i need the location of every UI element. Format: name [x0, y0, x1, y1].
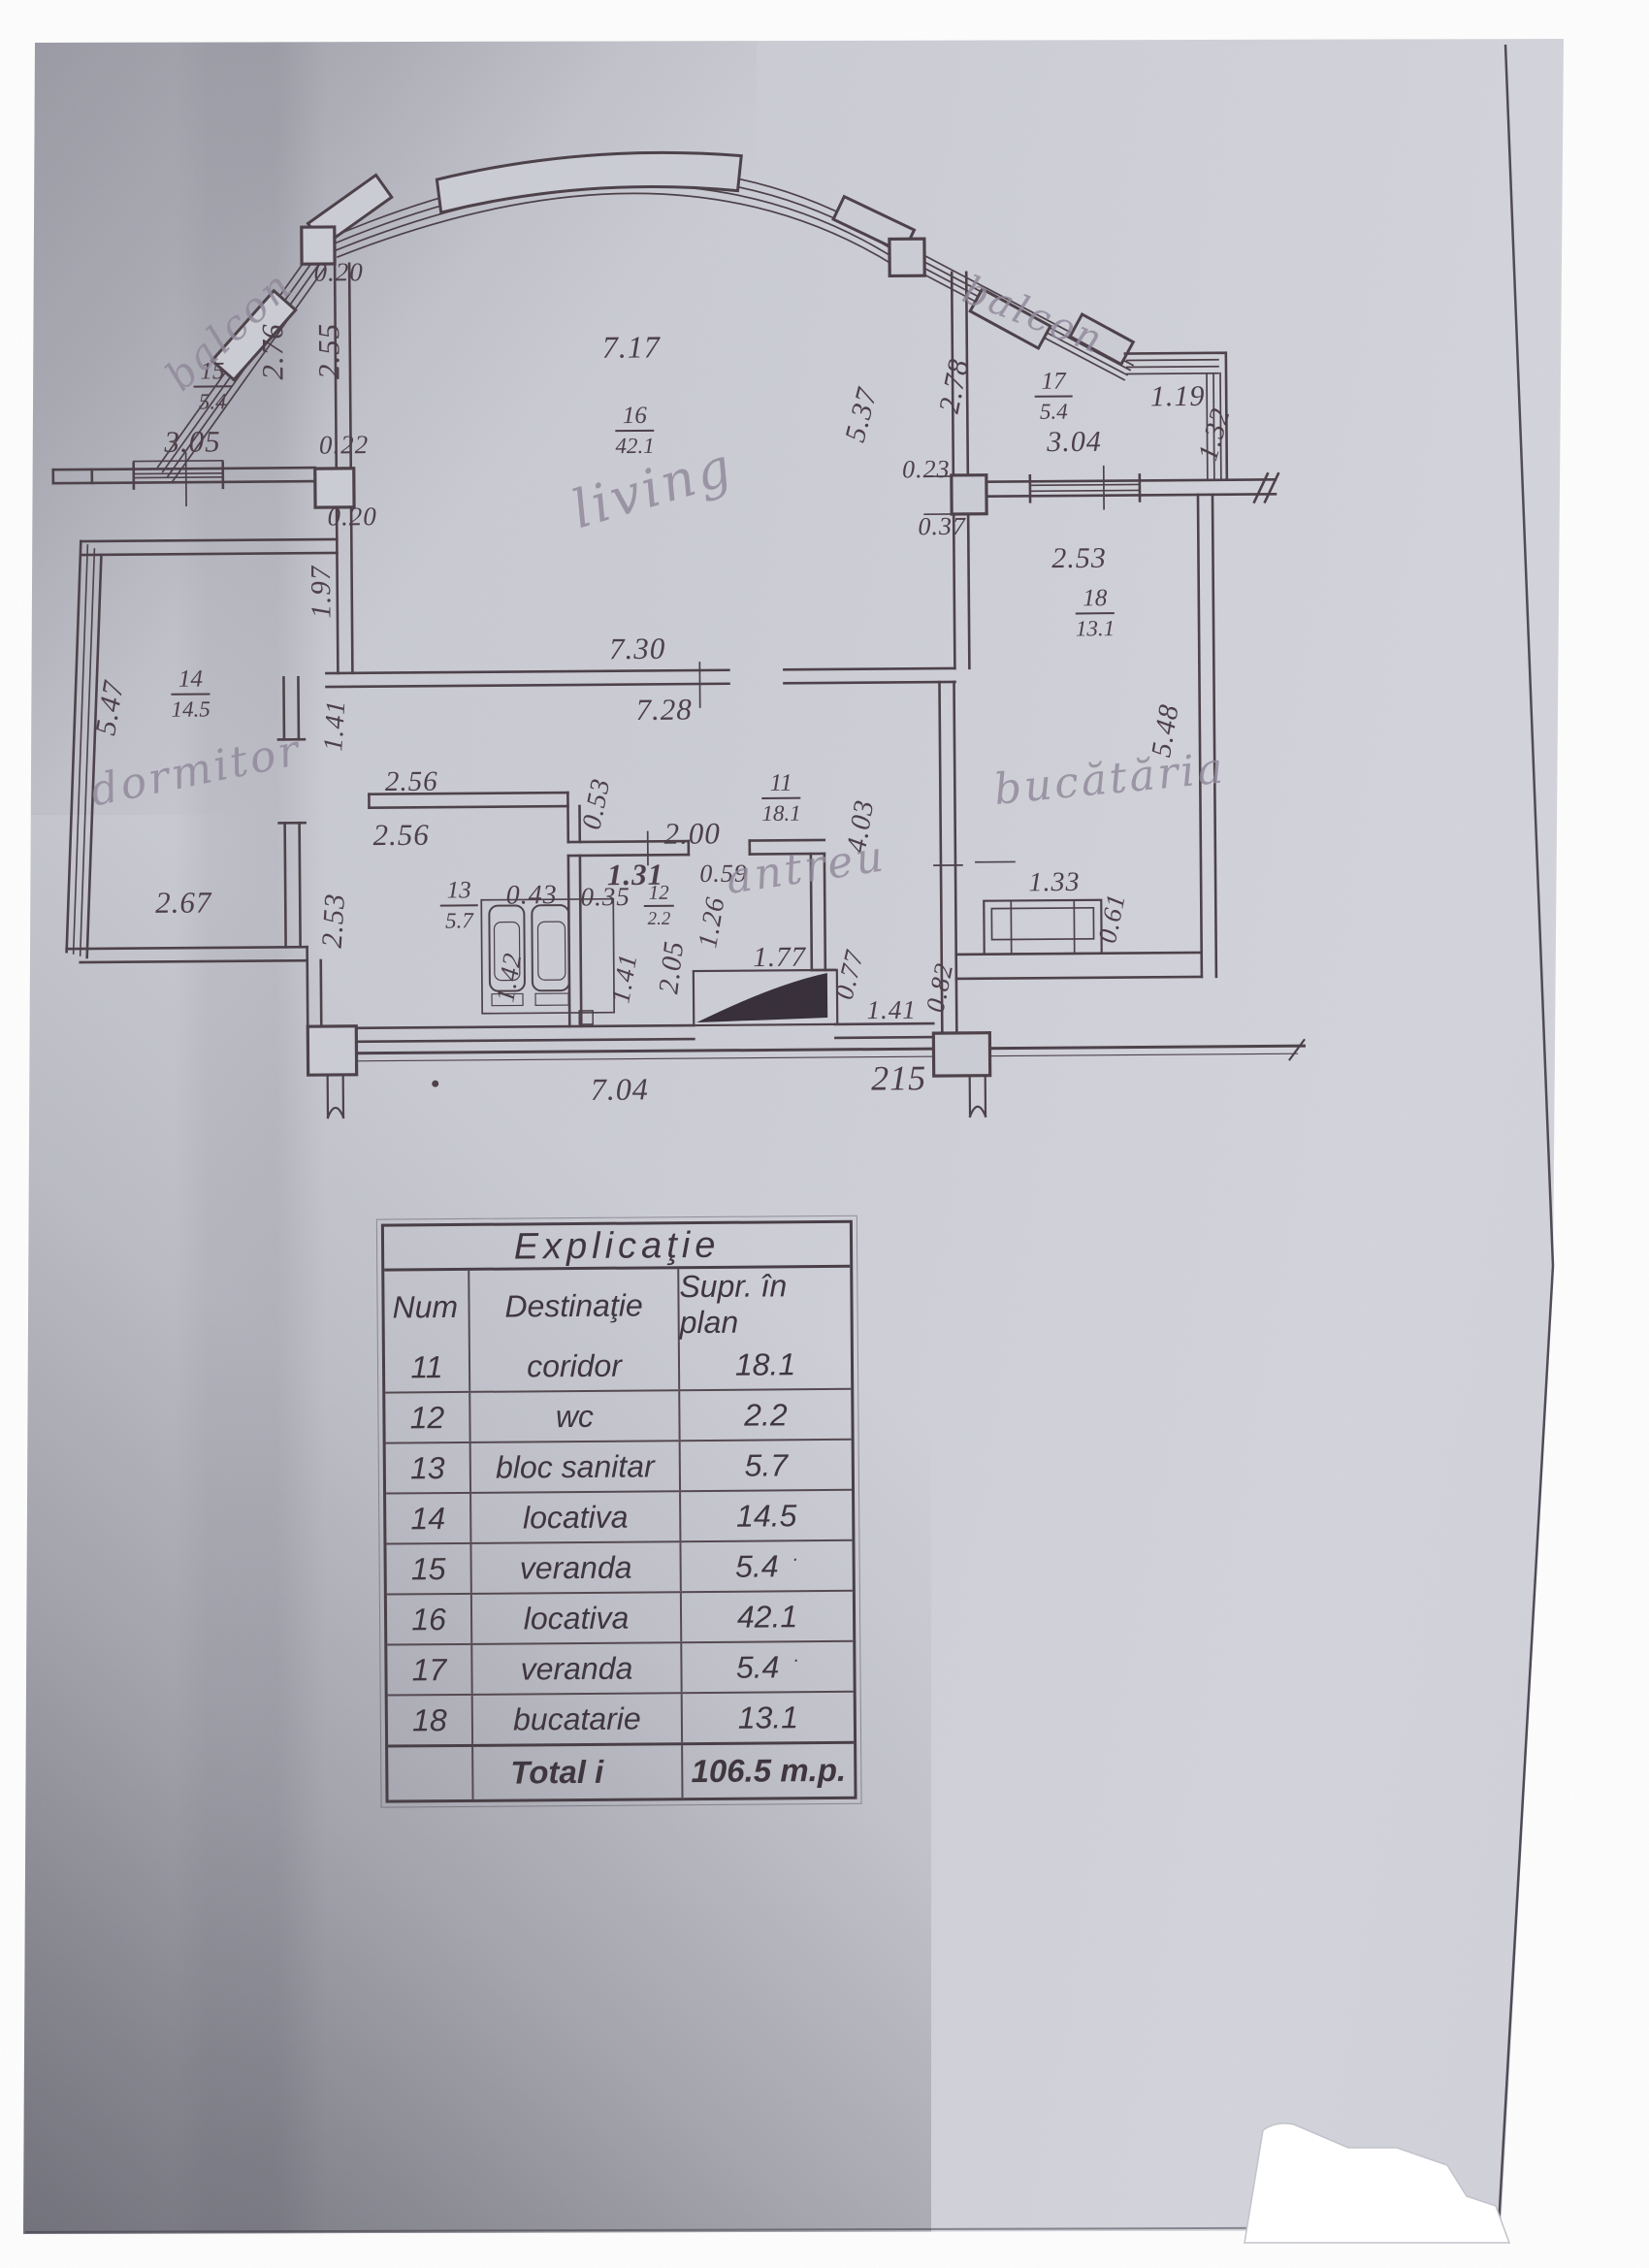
room-number: 14 — [171, 666, 210, 695]
table-header-destinatie: Destinaţie — [468, 1269, 678, 1343]
room-area: 14.5 — [171, 695, 210, 720]
dimension-label: 7.28 — [635, 695, 692, 725]
table-cell-num: 11 — [385, 1343, 469, 1392]
table-cell-destinatie: veranda — [469, 1542, 679, 1593]
table-row: 18bucatarie13.1 — [388, 1691, 854, 1745]
dimension-label: 2.55 — [313, 323, 343, 379]
dimension-label: 1.97 — [307, 566, 336, 619]
dimension-label: 7.04 — [591, 1073, 649, 1104]
table-row: 15veranda5.4· — [386, 1539, 852, 1594]
dimension-label: 2.67 — [155, 887, 211, 917]
table-row: 12wc2.2 — [385, 1388, 851, 1442]
table-cell-num: 17 — [387, 1645, 470, 1695]
table-header-row: Num Destinaţie Supr. în plan — [384, 1268, 851, 1344]
room-number: 17 — [1034, 369, 1072, 397]
room-area: 5.7 — [440, 906, 478, 931]
dimension-label: 7.30 — [609, 633, 665, 664]
room-area-fraction: 135.7 — [440, 878, 478, 931]
table-cell-destinatie: locativa — [470, 1593, 680, 1643]
stray-dot: · — [792, 1649, 799, 1671]
dimension-label: 1.33 — [1029, 869, 1081, 896]
dimension-label: 0.22 — [319, 432, 369, 458]
dimension-label: 2.53 — [1051, 544, 1107, 573]
ink-speck — [432, 1081, 438, 1087]
dimension-label: 2.56 — [372, 820, 429, 850]
table-cell-destinatie: locativa — [469, 1492, 679, 1542]
table-title: Explicaţie — [384, 1223, 850, 1272]
table-cell-num: 13 — [386, 1443, 469, 1493]
table-total-row: Total i 106.5 m.p. — [388, 1741, 854, 1800]
room-area-fraction: 1118.1 — [761, 771, 801, 825]
total-value: 106.5 m.p. — [681, 1744, 854, 1798]
room-area: 13.1 — [1076, 614, 1115, 639]
table-row: 11coridor18.1 — [385, 1340, 851, 1392]
table-cell-num: 18 — [388, 1696, 471, 1745]
dimension-label: 2.00 — [663, 818, 720, 848]
dimension-label: 1.19 — [1150, 382, 1206, 411]
room-area-fraction: 122.2 — [644, 883, 674, 928]
dimension-label: 1.77 — [753, 944, 806, 972]
dimension-label: 215 — [871, 1060, 926, 1095]
room-area: 42.1 — [615, 432, 654, 457]
room-number: 18 — [1076, 586, 1115, 614]
table-cell-suprafata: 42.1 — [680, 1592, 853, 1641]
table-cell-destinatie: wc — [469, 1391, 678, 1442]
room-area-fraction: 175.4 — [1034, 369, 1072, 422]
table-cell-suprafata: 14.5 — [679, 1491, 852, 1540]
dimension-label: 1.41 — [320, 699, 350, 753]
table-row: 16locativa42.1 — [387, 1590, 853, 1644]
table-cell-suprafata: 13.1 — [681, 1693, 854, 1742]
dimension-label: 2.56 — [385, 768, 438, 796]
room-area: 5.4 — [1035, 397, 1073, 422]
dimension-label: 1.41 — [866, 997, 916, 1023]
entry-door — [694, 970, 837, 1025]
table-header-suprafata: Supr. în plan — [677, 1268, 851, 1341]
table-cell-suprafata: 18.1 — [678, 1340, 851, 1389]
table-cell-suprafata: 5.4· — [680, 1642, 853, 1692]
dimension-label: 0.20 — [327, 503, 376, 530]
table-cell-num: 16 — [387, 1595, 470, 1644]
table-cell-destinatie: bloc sanitar — [469, 1442, 679, 1492]
table-header-num: Num — [384, 1271, 469, 1344]
dimension-label: 0.23 — [902, 457, 951, 482]
total-label: Total i — [471, 1745, 681, 1799]
dimension-label: 0.35 — [580, 884, 630, 910]
dimension-label: 3.04 — [1047, 428, 1102, 457]
table-cell-num: 14 — [386, 1494, 469, 1543]
room-area-fraction: 1414.5 — [171, 666, 210, 720]
table-cell-destinatie: bucatarie — [471, 1694, 681, 1744]
dimension-label: 0.37 — [918, 514, 966, 539]
dimension-label: 2.05 — [655, 939, 689, 995]
table-cell-destinatie: veranda — [470, 1643, 680, 1694]
room-number: 11 — [761, 771, 800, 799]
table-cell-suprafata: 5.7 — [679, 1441, 852, 1490]
dimension-label: 0.20 — [313, 259, 363, 285]
kitchen-window — [984, 900, 1101, 955]
table-cell-destinatie: coridor — [469, 1341, 678, 1391]
scan-content: 0.202.762.553.050.220.201.977.175.370.23… — [0, 0, 1649, 2268]
stray-dot: · — [792, 1548, 798, 1571]
dimension-label: 2.53 — [318, 892, 350, 949]
total-spacer — [388, 1747, 471, 1800]
table-cell-num: 12 — [385, 1393, 469, 1442]
table-cell-suprafata: 5.4· — [679, 1541, 852, 1591]
table-row: 13bloc sanitar5.7 — [386, 1439, 852, 1493]
room-number: 12 — [644, 883, 674, 907]
table-body: 11coridor18.112wc2.213bloc sanitar5.714l… — [385, 1340, 854, 1745]
table-cell-suprafata: 2.2 — [678, 1390, 851, 1440]
room-area-fraction: 1642.1 — [615, 404, 655, 457]
room-number: 16 — [615, 404, 654, 432]
dimension-label: 3.05 — [164, 426, 220, 456]
dimension-label: 7.17 — [602, 331, 661, 362]
table-row: 17veranda5.4· — [387, 1640, 853, 1695]
scanned-floor-plan-page: 0.202.762.553.050.220.201.977.175.370.23… — [0, 0, 1649, 2268]
room-number: 13 — [440, 878, 478, 906]
explicatie-table: Explicaţie Num Destinaţie Supr. în plan … — [381, 1220, 857, 1803]
table-cell-num: 15 — [386, 1544, 469, 1594]
dimension-label: 0.43 — [506, 882, 558, 909]
room-area: 18.1 — [761, 799, 800, 825]
room-area: 5.4 — [194, 387, 232, 412]
room-area-fraction: 1813.1 — [1076, 586, 1115, 639]
table-row: 14locativa14.5 — [386, 1489, 852, 1543]
room-area: 2.2 — [644, 907, 674, 928]
